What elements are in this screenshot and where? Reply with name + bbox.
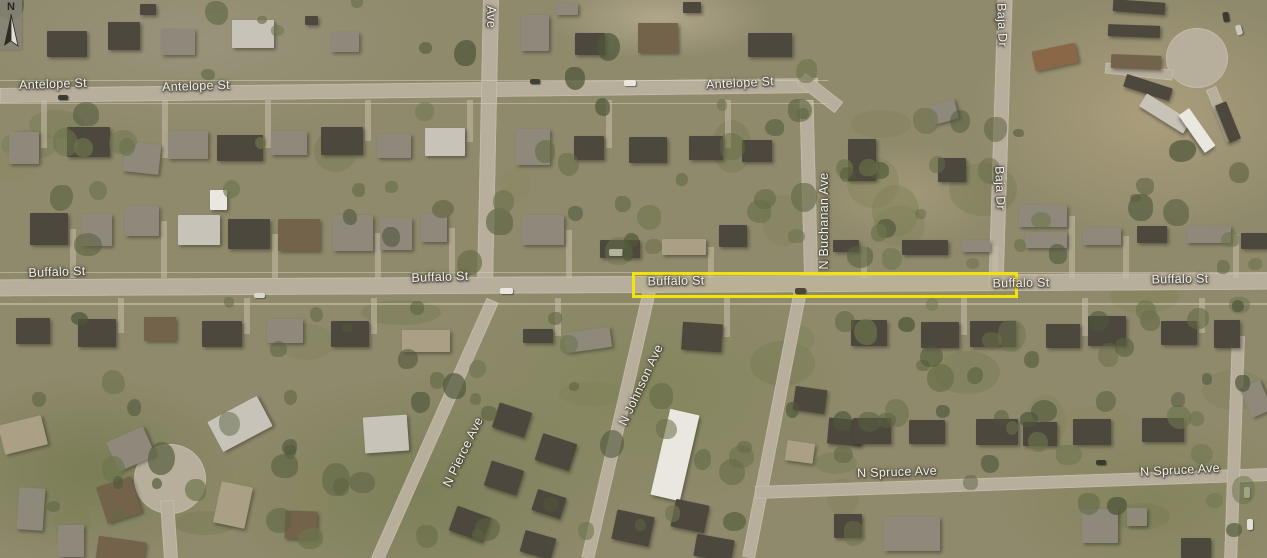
street-label-n-buchanan-ave: N Buchanan Ave xyxy=(817,172,831,269)
street-label-antelope-st: Antelope St xyxy=(19,76,87,92)
north-arrow: N xyxy=(0,0,22,50)
street-label-buffalo-st: Buffalo St xyxy=(1151,272,1208,287)
street-label-ave: Ave xyxy=(484,6,498,28)
street-label-n-spruce-ave: N Spruce Ave xyxy=(1140,461,1220,479)
street-labels-layer: Antelope StAntelope StAntelope StAveBaja… xyxy=(0,0,1267,558)
north-label: N xyxy=(7,1,15,13)
street-label-antelope-st: Antelope St xyxy=(162,78,230,94)
street-label-baja-dr: Baja Dr xyxy=(992,166,1008,210)
aerial-map[interactable]: Antelope StAntelope StAntelope StAveBaja… xyxy=(0,0,1267,558)
street-label-buffalo-st: Buffalo St xyxy=(411,269,468,285)
street-label-antelope-st: Antelope St xyxy=(706,74,775,92)
street-label-n-spruce-ave: N Spruce Ave xyxy=(857,464,937,481)
street-label-buffalo-st: Buffalo St xyxy=(647,274,704,289)
street-label-buffalo-st: Buffalo St xyxy=(28,264,85,280)
street-label-n-johnson-ave: N Johnson Ave xyxy=(616,342,666,427)
north-arrow-icon xyxy=(1,13,21,49)
street-label-baja-dr: Baja Dr xyxy=(994,3,1010,47)
street-label-buffalo-st: Buffalo St xyxy=(992,276,1049,291)
street-label-n-pierce-ave: N Pierce Ave xyxy=(440,415,486,489)
